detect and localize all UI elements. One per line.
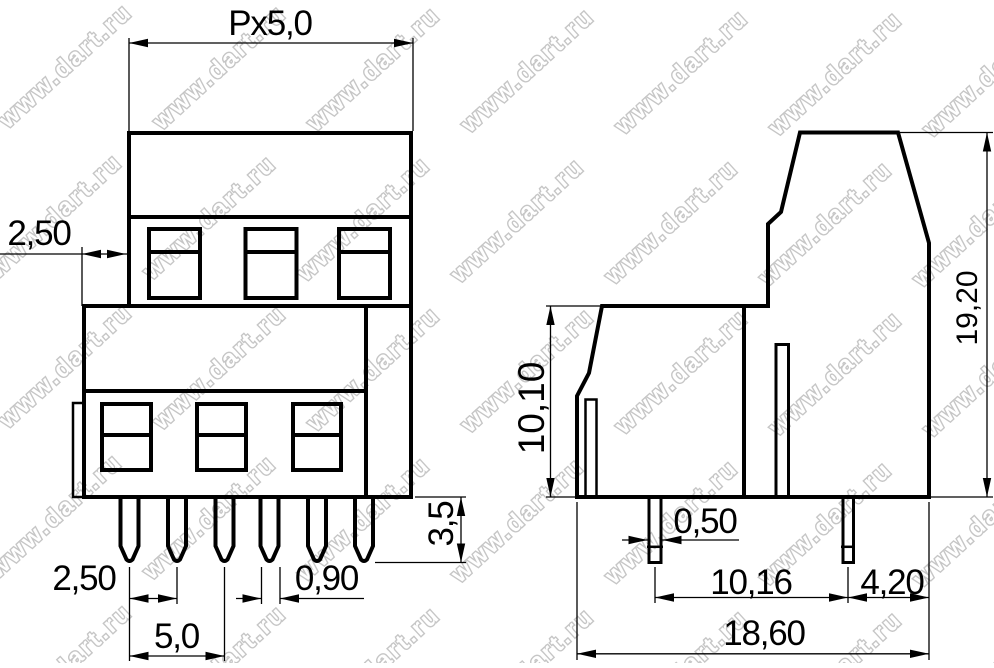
svg-text:10,16: 10,16 xyxy=(710,563,792,602)
svg-text:0,90: 0,90 xyxy=(295,559,359,598)
svg-text:3,5: 3,5 xyxy=(422,501,461,546)
svg-text:18,60: 18,60 xyxy=(723,614,805,653)
svg-text:2,50: 2,50 xyxy=(52,559,116,598)
svg-text:19,20: 19,20 xyxy=(951,270,984,345)
svg-text:5,0: 5,0 xyxy=(154,617,200,656)
svg-text:10,10: 10,10 xyxy=(511,362,552,455)
svg-text:Px5,0: Px5,0 xyxy=(228,4,312,43)
svg-text:2,50: 2,50 xyxy=(7,214,71,253)
svg-text:0,50: 0,50 xyxy=(673,502,737,541)
